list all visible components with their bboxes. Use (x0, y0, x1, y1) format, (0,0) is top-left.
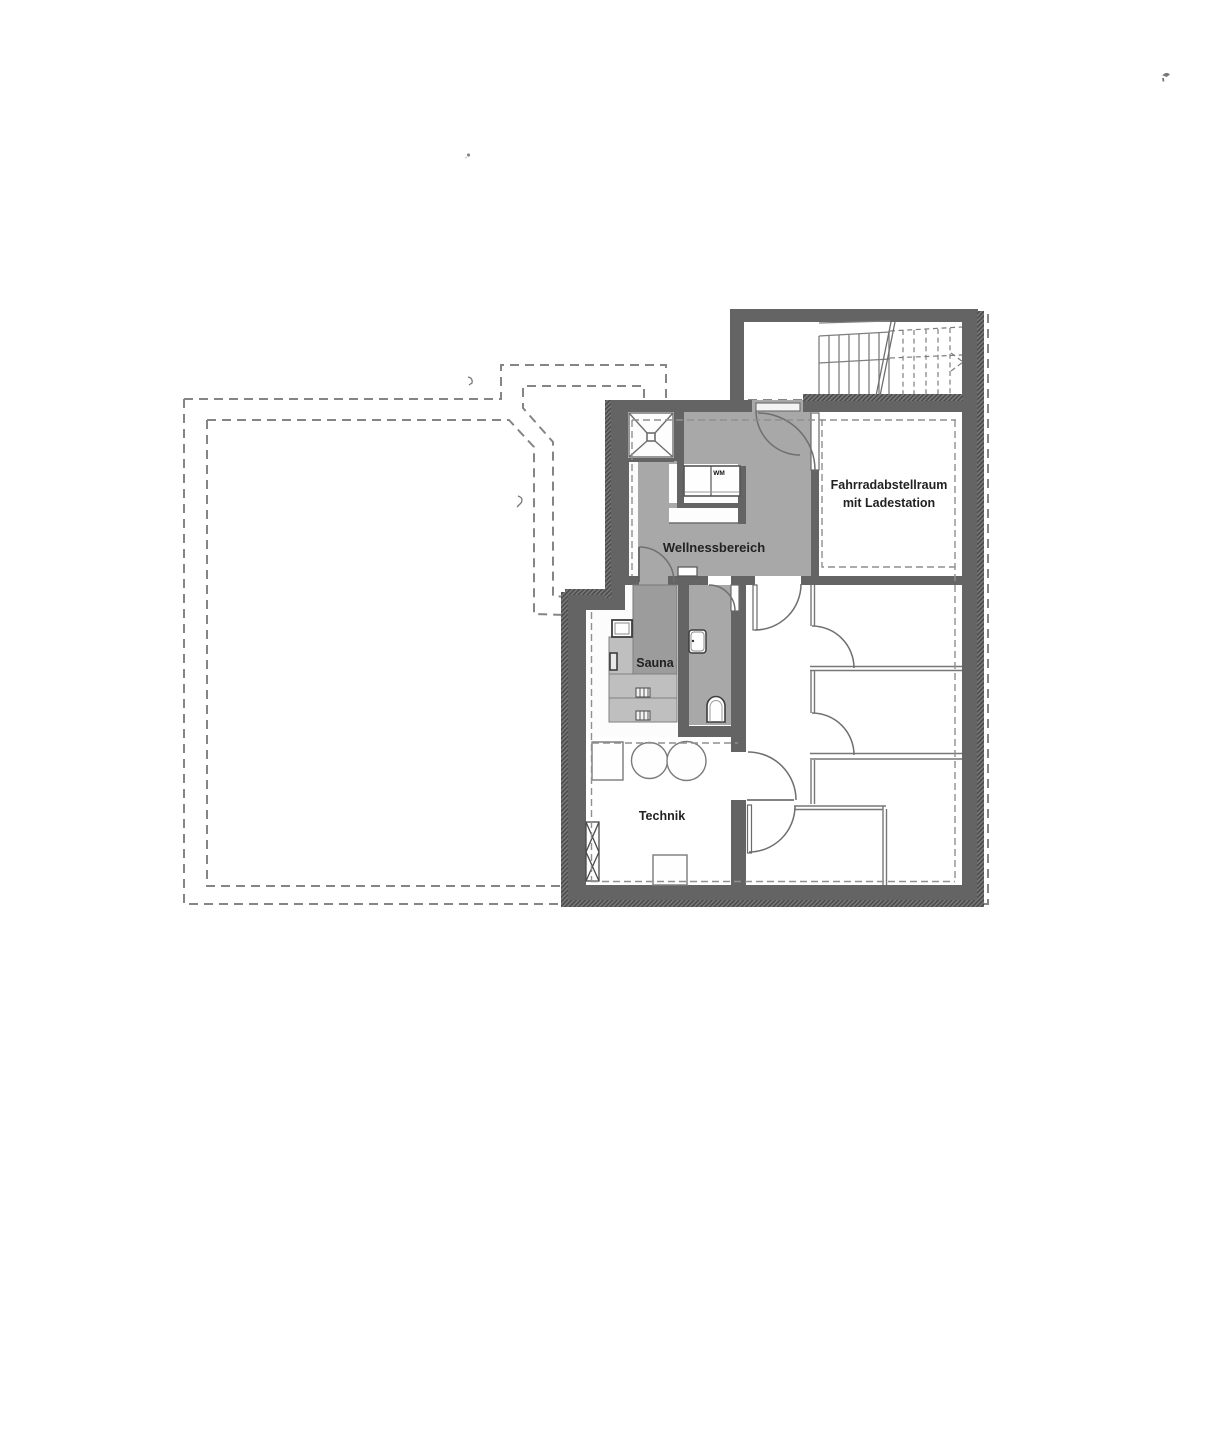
svg-text:mit Ladestation: mit Ladestation (843, 496, 935, 510)
svg-text:WM: WM (713, 470, 725, 477)
svg-text:Wellnessbereich: Wellnessbereich (663, 540, 765, 555)
svg-text:Sauna: Sauna (636, 656, 675, 670)
svg-text:Fahrradabstellraum: Fahrradabstellraum (831, 478, 948, 492)
svg-text:Technik: Technik (639, 809, 685, 823)
